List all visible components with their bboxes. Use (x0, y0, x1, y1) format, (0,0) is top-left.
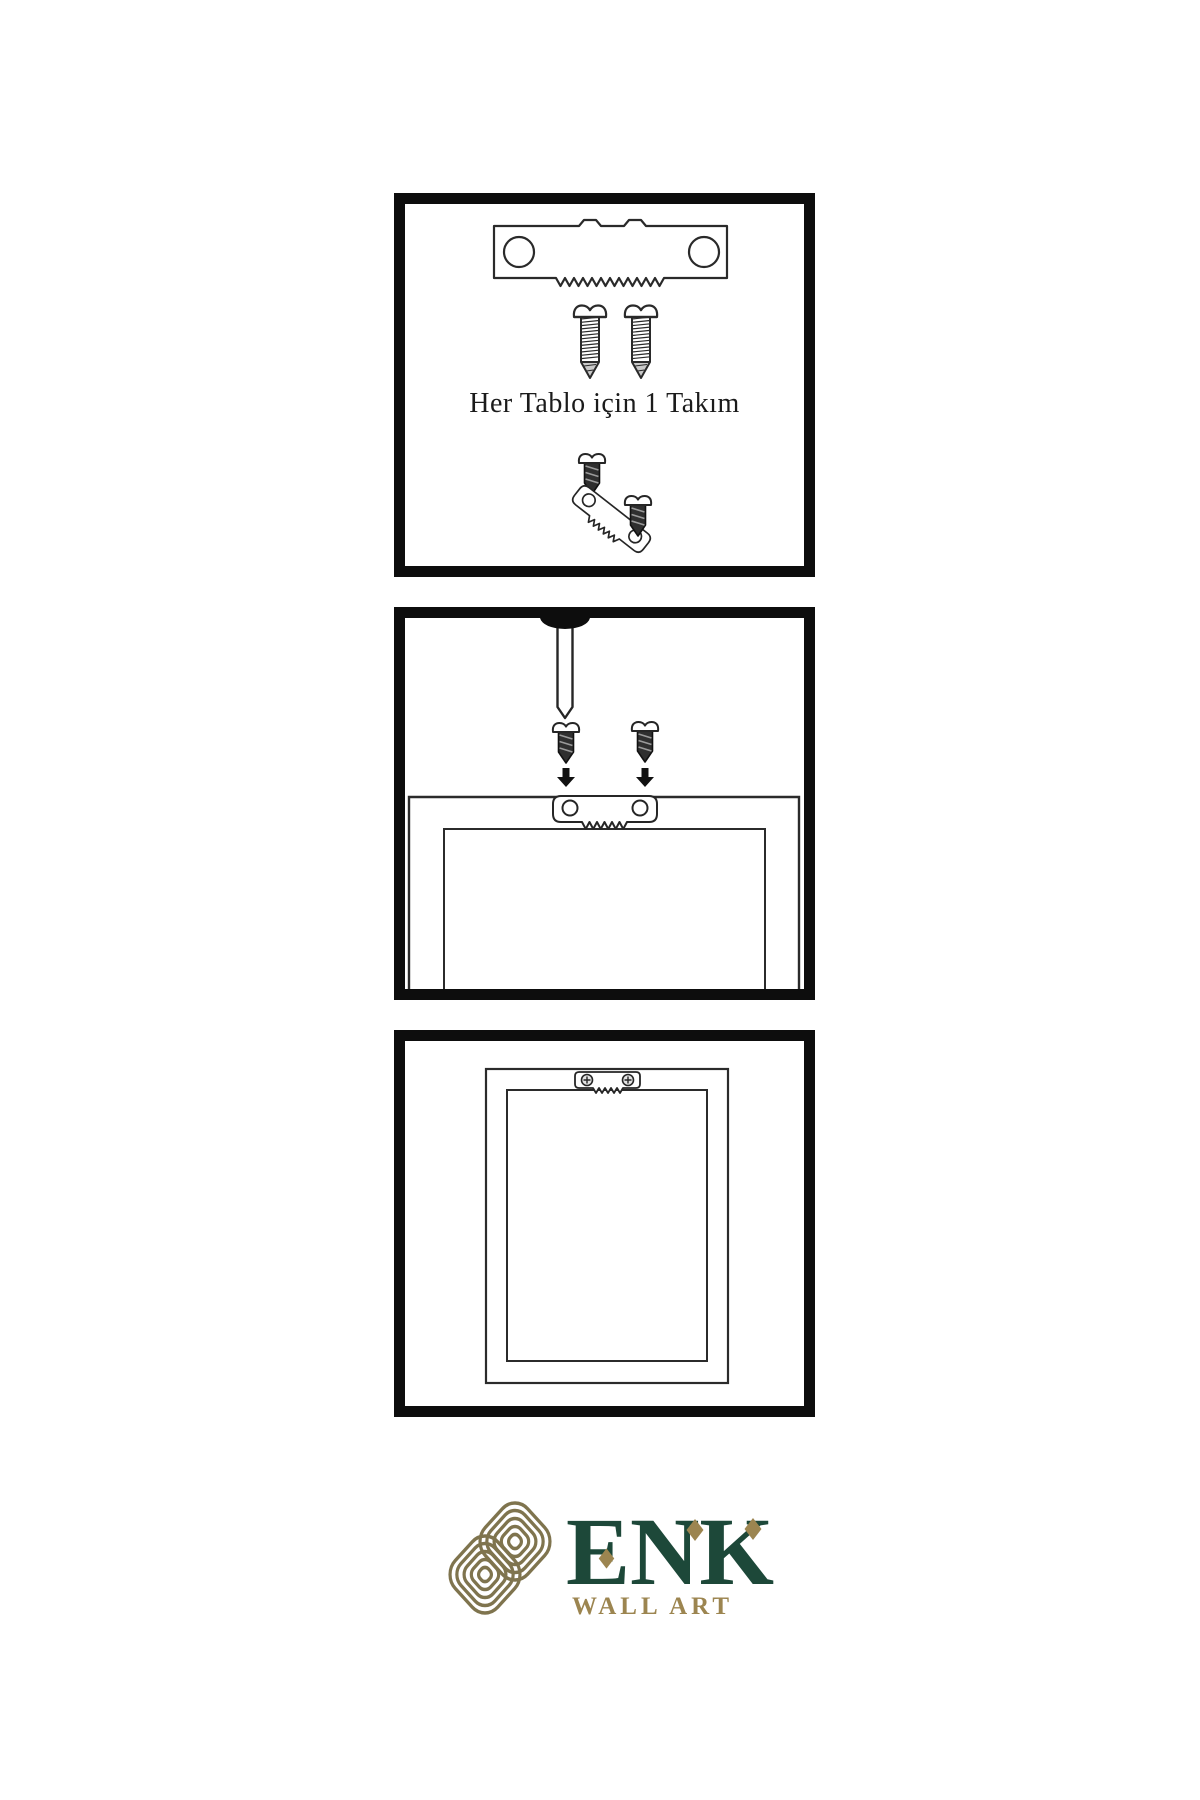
frame-back-icon (486, 1069, 728, 1383)
instruction-image: Her Tablo için 1 Takım (0, 0, 1200, 1800)
gold-diamond-icon (687, 1519, 704, 1541)
screw-icon (625, 306, 657, 379)
hardware-kit-diagram (405, 204, 804, 566)
panel-hardware-kit: Her Tablo için 1 Takım (394, 193, 815, 577)
screw-icon (574, 306, 606, 379)
panel1-caption: Her Tablo için 1 Takım (405, 388, 804, 420)
panel-finished-frame (394, 1030, 815, 1417)
screw-icon (632, 722, 658, 762)
brand-name: ENK (566, 1504, 774, 1600)
enk-knot-logo-icon (437, 1488, 563, 1628)
arrow-down-icon (557, 768, 575, 787)
sawtooth-hanger-icon (553, 796, 657, 829)
panel-hanging-step (394, 607, 815, 1000)
sawtooth-hanger-icon (494, 220, 727, 286)
hanging-step-diagram (405, 618, 804, 989)
screw-icon (553, 723, 579, 763)
brand-subtitle: WALL ART (572, 1594, 733, 1619)
arrow-down-icon (636, 768, 654, 787)
nail-icon (540, 618, 590, 718)
gold-diamond-icon (745, 1518, 762, 1540)
finished-frame-diagram (405, 1041, 804, 1406)
frame-back-icon (409, 797, 799, 989)
gold-diamond-icon (599, 1548, 615, 1568)
